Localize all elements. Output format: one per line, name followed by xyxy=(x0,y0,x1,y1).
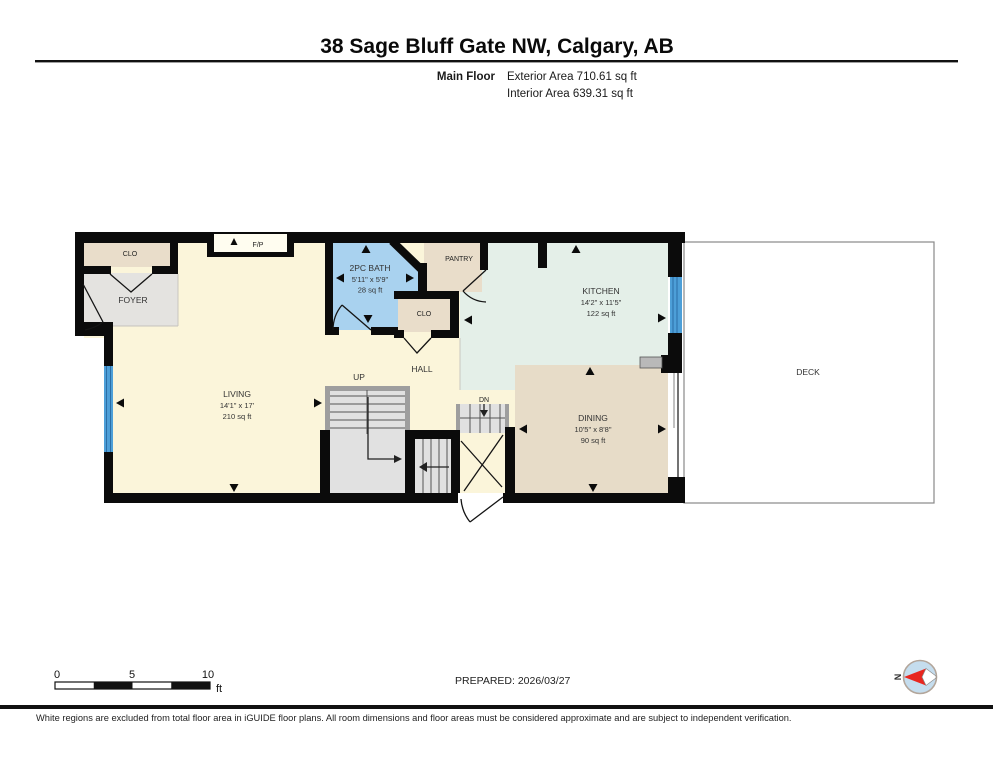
fireplace-inner xyxy=(214,234,287,252)
living-window xyxy=(104,366,113,452)
dining-dimensions: 10'5" x 8'8" xyxy=(575,425,612,434)
stairs-up-rail-left xyxy=(325,386,330,435)
bath-label: 2PC BATH xyxy=(350,263,391,273)
bath-dimensions: 5'11" x 5'9" xyxy=(352,275,389,284)
floorplan-page: 38 Sage Bluff Gate NW, Calgary, AB Main … xyxy=(0,0,993,768)
closet-hall-label: CLO xyxy=(417,311,432,318)
disclaimer-text: White regions are excluded from total fl… xyxy=(36,713,792,723)
footer-rule xyxy=(0,705,993,709)
stairs-up-label: UP xyxy=(353,372,365,382)
bath-area: 28 sq ft xyxy=(358,286,384,295)
floor-label: Main Floor xyxy=(437,71,496,83)
title-rule xyxy=(35,60,958,62)
floorplan-svg: 38 Sage Bluff Gate NW, Calgary, AB Main … xyxy=(0,0,993,768)
kitchen-label: KITCHEN xyxy=(582,286,619,296)
stairs-up-rail-right xyxy=(405,386,410,435)
kitchen-counter xyxy=(640,357,662,368)
scale-bar-seg2 xyxy=(171,682,210,689)
kitchen-area: 122 sq ft xyxy=(587,309,617,318)
scale-tick-0: 0 xyxy=(54,669,60,681)
pantry-label: PANTRY xyxy=(445,256,473,263)
stairs-dn-rail-right xyxy=(505,404,509,427)
scale-bar-seg1 xyxy=(94,682,133,689)
stairs-dn-rail-left xyxy=(456,404,460,433)
dining-label: DINING xyxy=(578,413,608,423)
kitchen-window xyxy=(670,277,682,333)
scale-tick-5: 5 xyxy=(129,669,135,681)
deck-area: DECK xyxy=(684,242,934,503)
living-area: 210 sq ft xyxy=(223,412,253,421)
stairs-down-label: DN xyxy=(479,397,489,404)
closet-foyer-label: CLO xyxy=(123,251,138,258)
pantry-floor xyxy=(424,243,482,292)
north-label: N xyxy=(893,674,903,681)
deck-label: DECK xyxy=(796,367,820,377)
hall-label: HALL xyxy=(411,364,433,374)
exterior-area-label: Exterior Area 710.61 sq ft xyxy=(507,71,638,83)
scale-bar: 0 5 10 ft xyxy=(54,669,222,695)
stairs-mid-floor xyxy=(415,439,452,493)
prepared-date: PREPARED: 2026/03/27 xyxy=(455,675,571,687)
kitchen-dimensions: 14'2" x 11'5" xyxy=(581,298,622,307)
north-compass: N xyxy=(893,661,937,694)
scale-tick-10: 10 xyxy=(202,669,214,681)
living-dimensions: 14'1" x 17' xyxy=(220,401,255,410)
scale-unit: ft xyxy=(216,683,222,695)
dining-area: 90 sq ft xyxy=(581,436,607,445)
fireplace-label: F/P xyxy=(253,242,264,249)
back-door-leaf xyxy=(470,497,503,522)
interior-area-label: Interior Area 639.31 sq ft xyxy=(507,88,634,100)
deck-sliding-door xyxy=(674,373,678,477)
fireplace: F/P xyxy=(207,232,294,257)
living-label: LIVING xyxy=(223,389,251,399)
header: 38 Sage Bluff Gate NW, Calgary, AB Main … xyxy=(35,35,958,100)
back-door-swing xyxy=(461,499,470,522)
foyer-label: FOYER xyxy=(118,295,147,305)
page-title: 38 Sage Bluff Gate NW, Calgary, AB xyxy=(320,35,674,58)
